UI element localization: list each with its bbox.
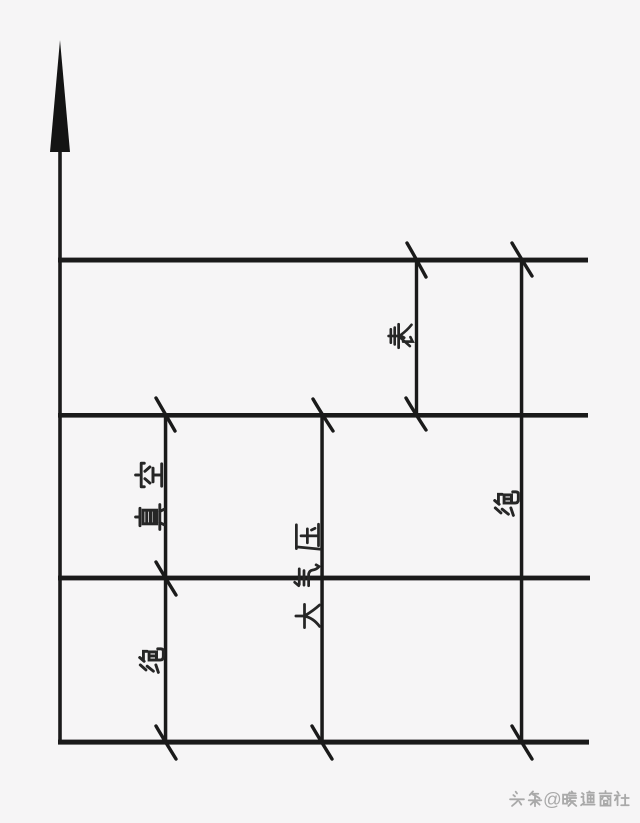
svg-text:@: @ — [543, 789, 562, 810]
